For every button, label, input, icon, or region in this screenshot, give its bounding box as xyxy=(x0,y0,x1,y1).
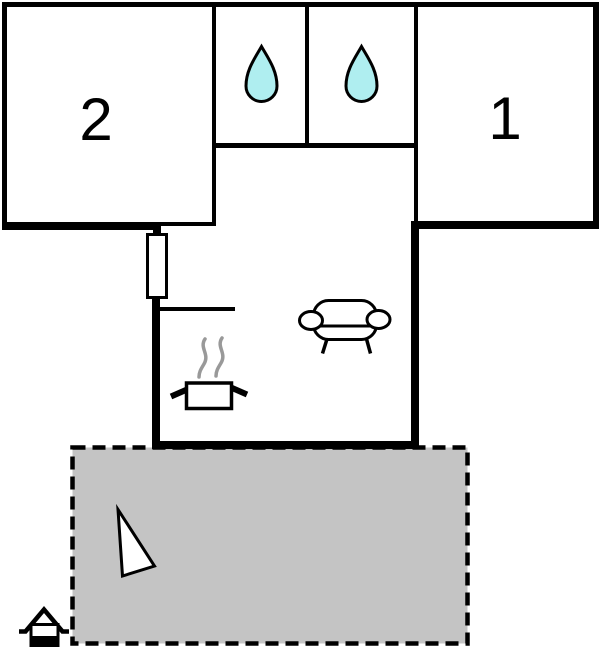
wall-segment xyxy=(2,2,7,230)
wall-segment xyxy=(305,2,309,147)
water-drop-icon xyxy=(346,47,377,102)
wall-segment xyxy=(153,226,161,234)
walls xyxy=(2,2,599,449)
floor-plan-drawing: 2 1 xyxy=(0,0,602,652)
house-icon xyxy=(19,610,69,647)
bathroom-right xyxy=(346,47,377,102)
wall-segment xyxy=(160,222,216,226)
wall-segment xyxy=(216,2,416,7)
room-2-label: 2 xyxy=(79,86,112,153)
wall-segment xyxy=(212,2,216,226)
wall-segment xyxy=(215,143,417,148)
terrace xyxy=(73,448,468,644)
sofa-armrest xyxy=(367,311,390,329)
wall-segment xyxy=(411,221,419,449)
wall-segment xyxy=(416,2,599,7)
sofa-armrest xyxy=(300,312,323,330)
steam-wisp xyxy=(199,339,206,377)
wall-segment xyxy=(2,2,216,7)
house-base xyxy=(30,636,60,647)
steam-wisp xyxy=(216,338,223,376)
water-drop-icon xyxy=(246,47,277,102)
sofa-leg xyxy=(367,339,371,354)
cooking-pot-icon xyxy=(171,338,247,409)
sofa-icon xyxy=(300,301,391,354)
pot-handle xyxy=(231,388,247,395)
pot-handle xyxy=(171,390,187,397)
wall-segment xyxy=(152,299,160,449)
pot-body xyxy=(187,383,232,409)
wall-segment xyxy=(414,221,599,229)
wall-segment xyxy=(2,222,160,230)
wall-segment xyxy=(593,2,599,229)
room-1-label: 1 xyxy=(488,85,521,152)
floor-plan: 2 1 xyxy=(0,0,602,652)
entrance-door-marker xyxy=(148,235,167,298)
bathroom-left xyxy=(246,47,277,102)
wall-segment xyxy=(414,2,418,222)
kitchen-counter-wall xyxy=(160,307,235,311)
wall-segment xyxy=(153,441,419,449)
sofa-leg xyxy=(323,339,328,354)
